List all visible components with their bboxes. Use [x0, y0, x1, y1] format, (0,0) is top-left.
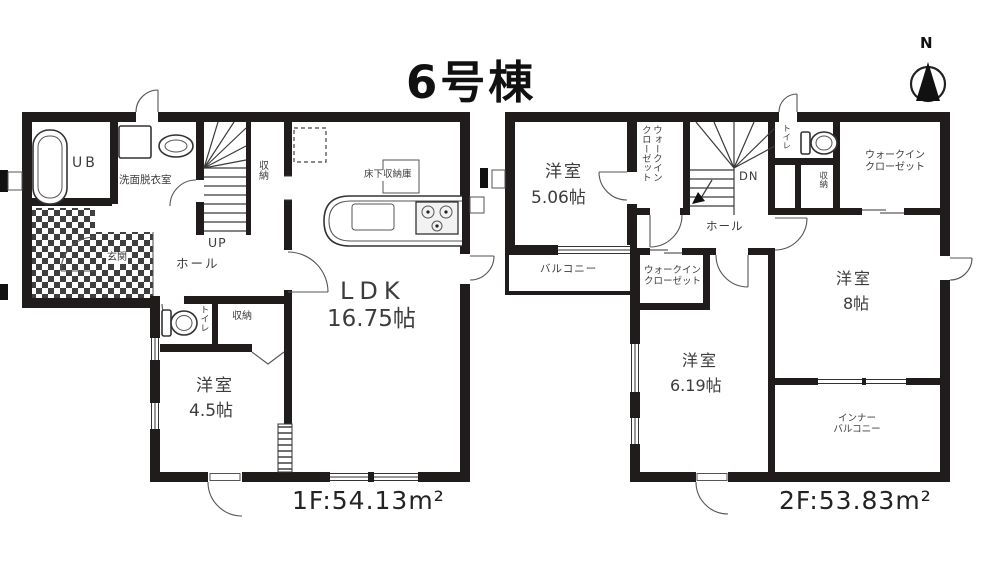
label-2f-bedroom3-size: 6.19帖: [670, 377, 722, 395]
label-2f-inner-balcony: インナー バルコニー: [817, 414, 897, 436]
floor-plan-canvas: 6号棟 N UB 洗面脱衣室 収納 床下収納庫 玄関 ホール UP トイレ 収納…: [0, 0, 1000, 562]
label-2f-stairs-down: DN: [739, 170, 758, 183]
toilet-2f-icon: [801, 132, 837, 154]
label-2f-area: 2F:53.83m²: [779, 487, 932, 516]
vent-1f-icon: [8, 172, 22, 190]
stairs-2f: [690, 122, 775, 215]
label-2f-bedroom2-size: 8帖: [843, 295, 869, 313]
stove-icon: [416, 202, 458, 234]
label-2f-bedroom1-name: 洋室: [545, 163, 583, 183]
label-1f-bedroom-size: 4.5帖: [189, 402, 233, 422]
entrance-tile: [95, 232, 153, 298]
label-1f-entrance: 玄関: [106, 252, 128, 264]
page-title: 6号棟: [406, 46, 536, 111]
refrigerator-space: [294, 128, 326, 162]
label-1f-stair-storage: 収納: [256, 160, 268, 180]
label-2f-wic-center: ウォークイン クローゼット: [644, 266, 701, 288]
label-1f-underfloor-storage: 床下収納庫: [364, 170, 412, 181]
label-2f-balcony: バルコニー: [540, 263, 597, 275]
label-1f-bedroom-name: 洋室: [196, 377, 234, 397]
washer-icon: [119, 126, 151, 158]
label-1f-ub: UB: [72, 155, 98, 171]
label-1f-washroom: 洗面脱衣室: [119, 174, 172, 186]
label-2f-hall: ホール: [706, 220, 744, 233]
balcony-rail: [505, 255, 509, 295]
balcony-rail: [505, 291, 640, 295]
label-1f-toilet: トイレ: [198, 305, 208, 332]
label-1f-closet: 収納: [232, 311, 252, 323]
vent-2f-icon: [492, 170, 505, 188]
label-2f-storage: 収納: [817, 171, 827, 188]
label-2f-bedroom2-name: 洋室: [836, 270, 872, 288]
label-2f-wic-north: ウォークイン クローゼット: [852, 150, 938, 173]
label-2f-bedroom3-name: 洋室: [682, 352, 718, 370]
label-1f-ldk-size: 16.75帖: [327, 306, 416, 332]
floor1-plan: [0, 90, 494, 516]
label-2f-bedroom1-size: 5.06帖: [531, 189, 586, 209]
label-1f-ldk-name: LDK: [340, 278, 406, 306]
toilet-1f-icon: [162, 310, 197, 336]
vent-kitchen-icon: [470, 197, 484, 213]
compass-north-label: N: [920, 34, 933, 52]
north-compass-icon: [911, 62, 945, 101]
label-2f-wic-west: ウォークイン クローゼット: [639, 125, 661, 201]
ladder-hatch-strip: [278, 424, 292, 472]
edge-mark: [0, 170, 8, 192]
label-1f-stairs-up: UP: [208, 236, 227, 250]
bathtub-icon: [33, 130, 67, 204]
label-2f-toilet: トイレ: [780, 124, 790, 150]
edge-mark: [0, 284, 8, 300]
sink-icon: [159, 135, 193, 157]
stairs-1f: [204, 122, 246, 231]
label-1f-area: 1F:54.13m²: [292, 487, 445, 516]
label-1f-hall: ホール: [176, 257, 220, 271]
porch-tile: [32, 208, 95, 298]
edge-mark: [480, 168, 488, 188]
